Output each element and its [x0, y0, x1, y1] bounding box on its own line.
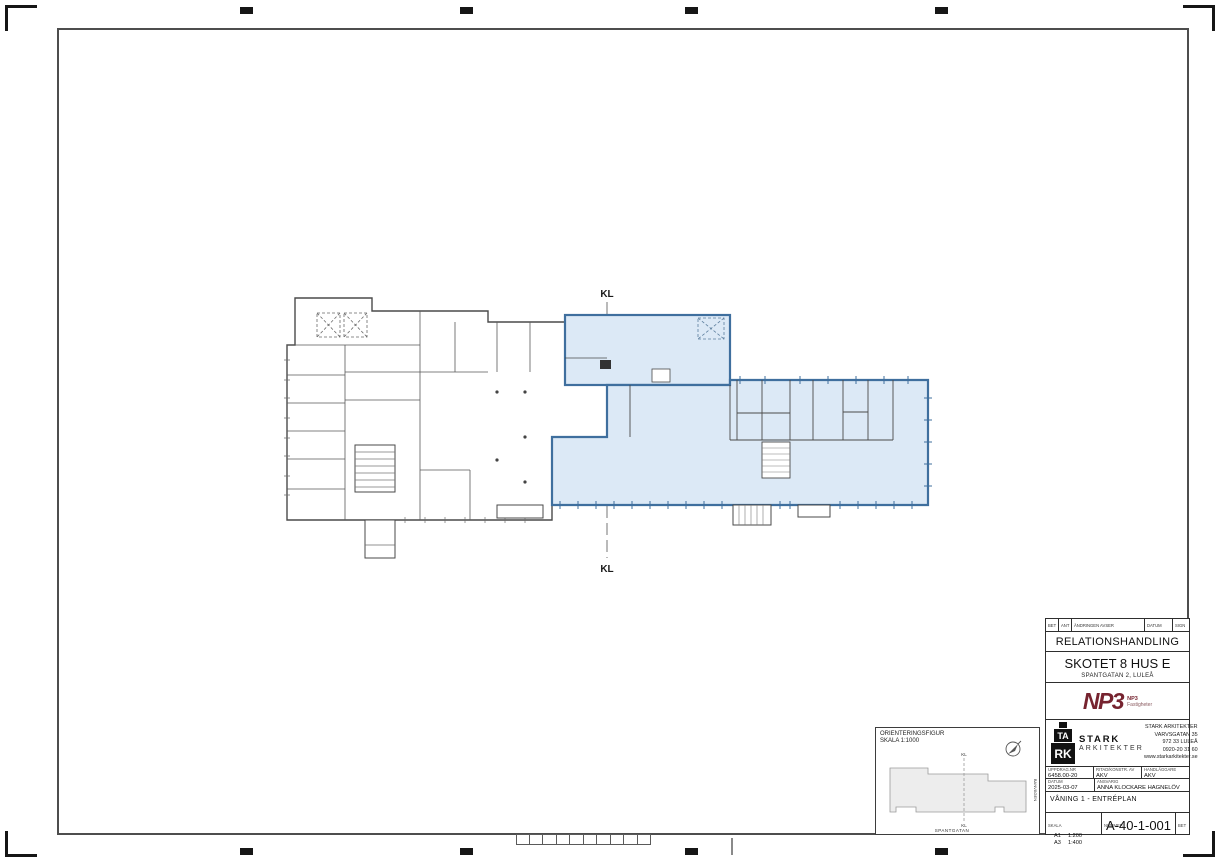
- rev-col-avser: ÄNDRINGEN AVSER: [1072, 619, 1145, 631]
- title-block: BET ANT ÄNDRINGEN AVSER DATUM SIGN RELAT…: [1045, 618, 1190, 835]
- rev-col-datum: DATUM: [1145, 619, 1173, 631]
- client-logo-section: NP3 NP3 Fastigheter: [1046, 683, 1189, 720]
- architect-address: STARK ARKITEKTER VARVSGATAN 35 972 33 LU…: [1144, 724, 1198, 761]
- bet-cell: BET: [1176, 813, 1189, 834]
- trim-mark-corner: [5, 831, 37, 857]
- architect-section: TA RK STARK ARKITEKTER STARK ARKITEKTER …: [1046, 720, 1189, 767]
- orientation-figure-title: ORIENTERINGSFIGUR SKALA 1:1000: [880, 731, 944, 745]
- document-type: RELATIONSHANDLING: [1046, 632, 1189, 652]
- svg-text:RK: RK: [1054, 747, 1072, 761]
- rev-col-ant: ANT: [1059, 619, 1072, 631]
- drawing-sheet: KL KL ORIENTERINGSFIGUR SKALA 1:1000 KL …: [0, 0, 1220, 862]
- orientation-building-outline: [890, 768, 1026, 812]
- revision-header-row: BET ANT ÄNDRINGEN AVSER DATUM SIGN: [1046, 619, 1189, 632]
- project-section: SKOTET 8 HUS E SPANTGATAN 2, LULEÅ: [1046, 652, 1189, 683]
- trim-mark-corner: [1183, 5, 1215, 31]
- drawing-title: VÅNING 1 - ENTRÉPLAN: [1046, 792, 1189, 813]
- registration-mark: [460, 848, 473, 855]
- rev-col-sign: SIGN: [1173, 619, 1189, 631]
- fold-mark: [731, 838, 733, 855]
- street-label-banvagen: BANVÄGEN: [1033, 779, 1038, 801]
- north-arrow-icon: [1006, 741, 1021, 756]
- registration-mark: [685, 7, 698, 14]
- registration-mark: [240, 7, 253, 14]
- registration-mark: [460, 7, 473, 14]
- meta-fields: UPPDRAG.NR 6458.00-20 RITAD/KONSTR. AV A…: [1046, 767, 1189, 792]
- stark-tower-logo-icon: TA RK: [1050, 722, 1076, 764]
- registration-mark: [935, 7, 948, 14]
- registration-mark: [240, 848, 253, 855]
- sheet-border-frame: [57, 28, 1189, 835]
- scale-number-row: SKALA A11:200 A31:400 NUMMER A-40-1-001 …: [1046, 813, 1189, 834]
- rev-col-bet: BET: [1046, 619, 1059, 631]
- drawing-number: A-40-1-001: [1102, 818, 1175, 833]
- trim-mark-corner: [5, 5, 37, 31]
- project-name: SKOTET 8 HUS E: [1065, 656, 1171, 671]
- field-handlaggare: HANDLÄGGARE AKV: [1142, 767, 1189, 778]
- number-cell: NUMMER A-40-1-001: [1102, 813, 1176, 834]
- field-datum: DATUM 2025-03-07: [1046, 779, 1095, 791]
- field-ritad-av: RITAD/KONSTR. AV AKV: [1094, 767, 1142, 778]
- svg-text:TA: TA: [1057, 731, 1069, 741]
- field-uppdragnr: UPPDRAG.NR 6458.00-20: [1046, 767, 1094, 778]
- field-ansvarig: ANSVARIG ANNA KLOCKARE HAGNELÖV: [1095, 779, 1189, 791]
- orientation-figure-box: ORIENTERINGSFIGUR SKALA 1:1000 KL KL SPA…: [875, 727, 1040, 835]
- orientation-kl-top: KL: [961, 752, 967, 757]
- registration-mark: [935, 848, 948, 855]
- street-label-spantgatan: SPANTGATAN: [935, 828, 970, 833]
- registration-mark: [685, 848, 698, 855]
- project-address: SPANTGATAN 2, LULEÅ: [1081, 673, 1153, 679]
- architect-logo-text: STARK ARKITEKTER: [1079, 734, 1144, 752]
- scale-cell: SKALA A11:200 A31:400: [1046, 813, 1102, 834]
- np3-logo: NP3: [1083, 690, 1123, 713]
- graphic-scale-bar: [516, 834, 651, 845]
- np3-logo-subtext: NP3 Fastigheter: [1127, 696, 1152, 708]
